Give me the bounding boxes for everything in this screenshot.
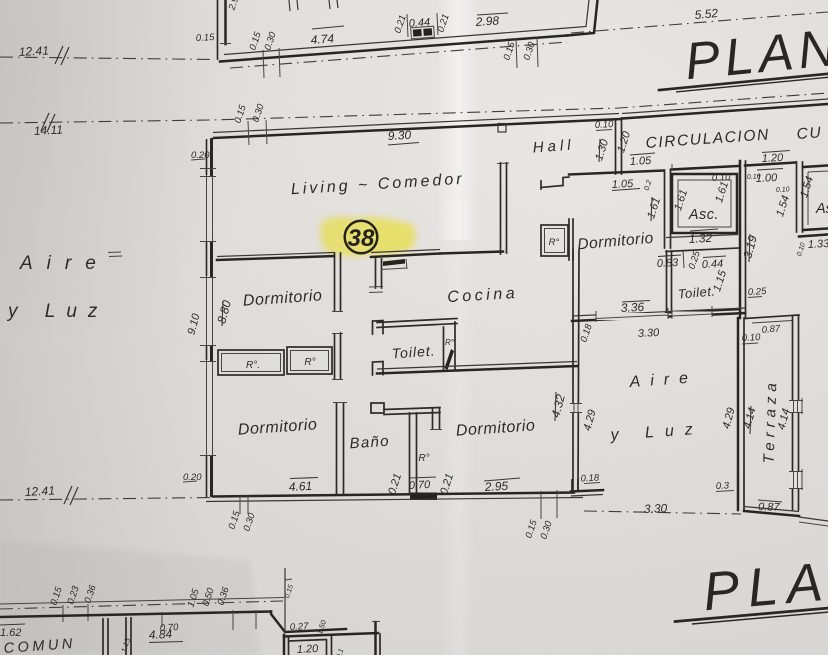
svg-text:CU: CU — [796, 124, 823, 143]
svg-text:3.30: 3.30 — [644, 501, 668, 516]
svg-text:0.70: 0.70 — [409, 479, 432, 492]
svg-text:Asc.: Asc. — [688, 207, 719, 223]
svg-text:Toilet.: Toilet. — [391, 343, 436, 362]
svg-text:0.87: 0.87 — [761, 323, 781, 336]
svg-text:R°: R° — [304, 357, 315, 368]
svg-text:1.62: 1.62 — [0, 627, 21, 639]
svg-text:1.33: 1.33 — [808, 238, 828, 251]
svg-text:0.44: 0.44 — [702, 258, 724, 271]
svg-text:0.3: 0.3 — [716, 480, 730, 492]
svg-text:Hall: Hall — [532, 137, 575, 157]
svg-text:9.30: 9.30 — [387, 128, 411, 143]
svg-text:R°: R° — [549, 237, 560, 248]
svg-text:R°.: R°. — [246, 360, 260, 371]
svg-text:Aire: Aire — [19, 253, 110, 274]
svg-text:y Luz: y Luz — [6, 301, 108, 322]
svg-text:0.10: 0.10 — [776, 186, 790, 194]
svg-text:2.95: 2.95 — [483, 479, 508, 494]
svg-text:0.27: 0.27 — [290, 621, 310, 633]
svg-text:12.41: 12.41 — [24, 483, 55, 499]
svg-text:0.83: 0.83 — [657, 257, 680, 270]
svg-text:1.20: 1.20 — [297, 643, 320, 655]
svg-text:0.10: 0.10 — [747, 173, 761, 181]
svg-text:0.10: 0.10 — [742, 332, 762, 344]
svg-text:4.61: 4.61 — [288, 479, 312, 494]
svg-text:1.20: 1.20 — [762, 152, 785, 165]
svg-text:12.41: 12.41 — [18, 43, 49, 59]
svg-text:5.52: 5.52 — [694, 6, 719, 22]
svg-text:0.25: 0.25 — [748, 286, 768, 298]
svg-text:Baño: Baño — [349, 433, 390, 453]
svg-text:38: 38 — [348, 225, 375, 252]
svg-text:3.30: 3.30 — [638, 327, 661, 340]
svg-text:1.32: 1.32 — [688, 231, 712, 246]
svg-text:R°: R° — [418, 453, 429, 464]
svg-text:0.87: 0.87 — [758, 501, 781, 514]
svg-text:4.74: 4.74 — [310, 31, 335, 47]
svg-text:Asc: Asc — [815, 201, 828, 217]
svg-text:3.36: 3.36 — [620, 300, 644, 315]
svg-text:4.84: 4.84 — [148, 627, 172, 642]
svg-text:0.15: 0.15 — [196, 32, 216, 44]
svg-text:R°: R° — [445, 338, 455, 347]
svg-text:2.98: 2.98 — [474, 13, 500, 29]
svg-text:14.11: 14.11 — [33, 122, 63, 138]
svg-text:1.05: 1.05 — [630, 155, 653, 168]
